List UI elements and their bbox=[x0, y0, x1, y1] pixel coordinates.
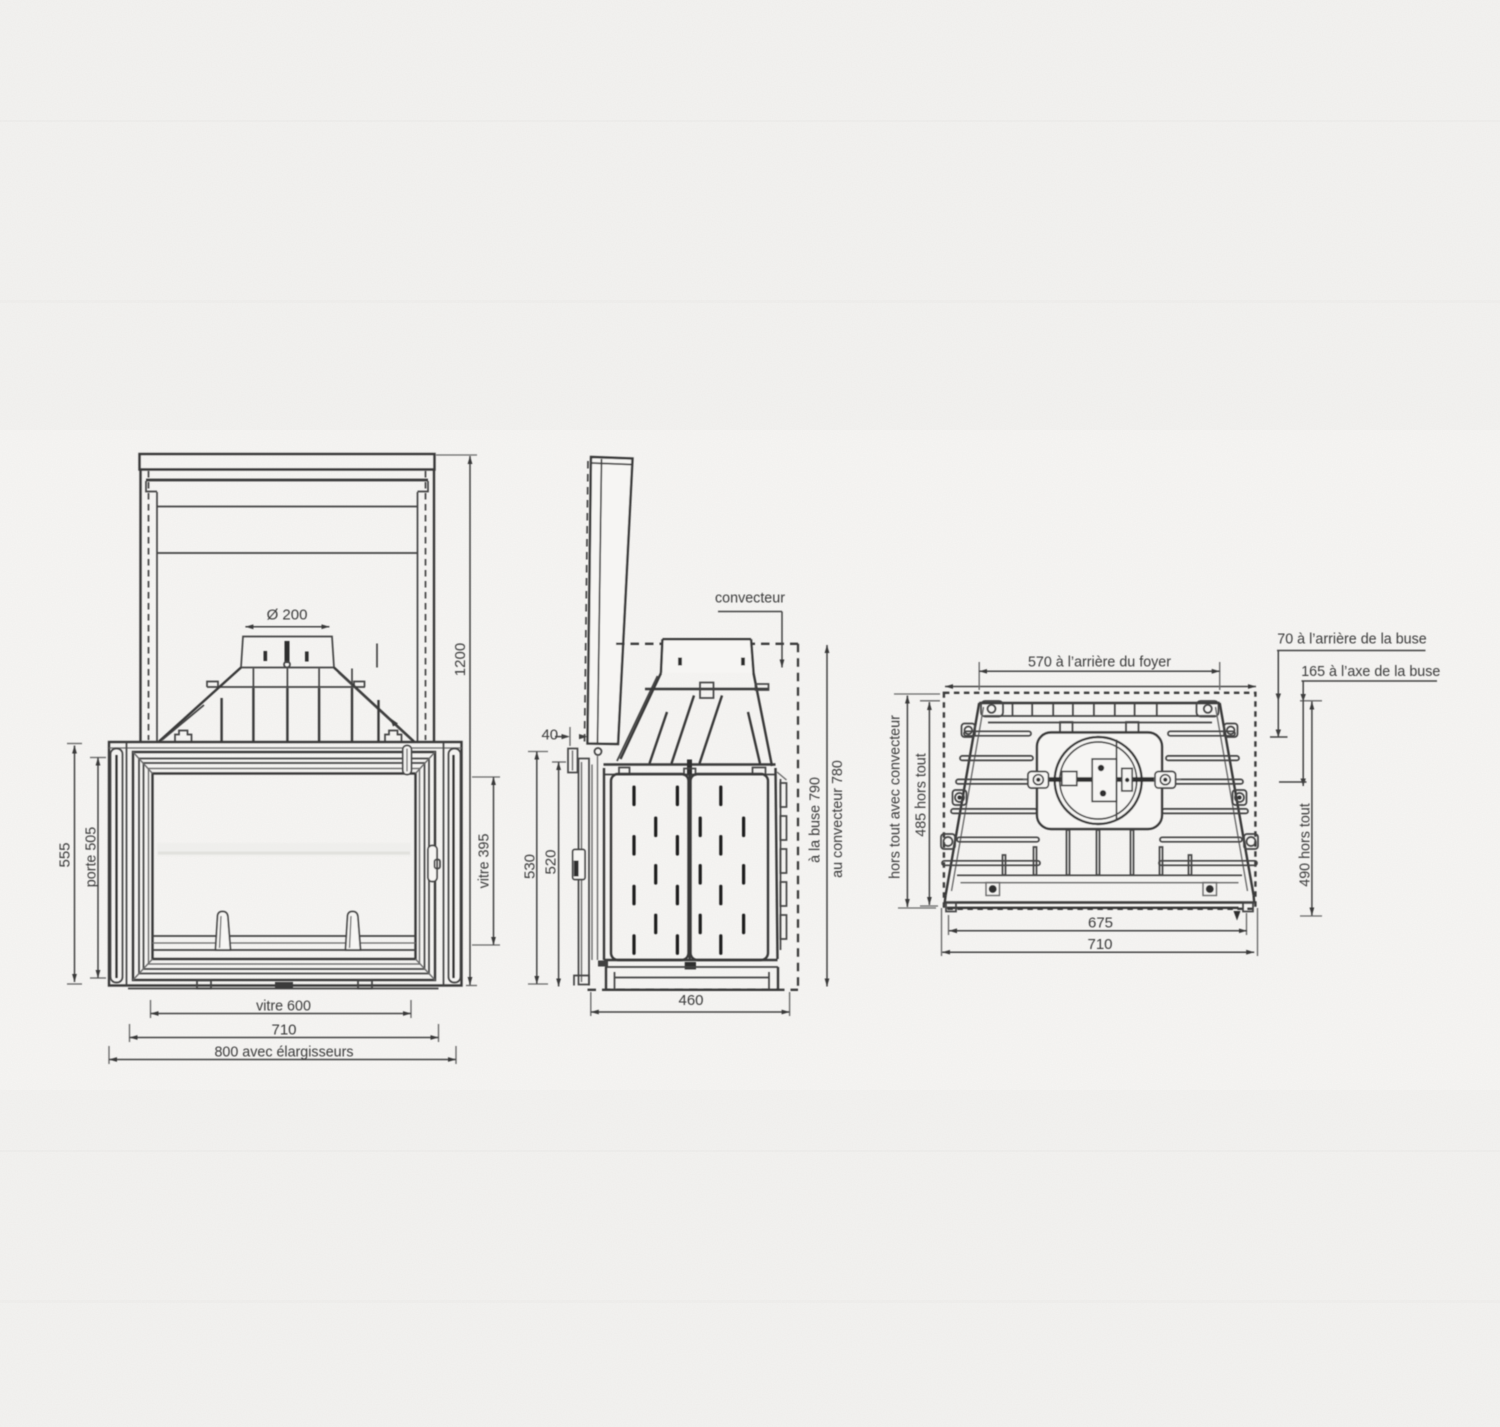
svg-text:porte 505: porte 505 bbox=[84, 827, 100, 887]
svg-text:710: 710 bbox=[271, 1022, 296, 1039]
svg-text:800 avec élargisseurs: 800 avec élargisseurs bbox=[214, 1045, 353, 1061]
svg-text:710: 710 bbox=[1087, 936, 1112, 953]
svg-text:Ø 200: Ø 200 bbox=[267, 607, 308, 624]
svg-text:555: 555 bbox=[57, 842, 74, 867]
svg-text:485 hors tout: 485 hors tout bbox=[914, 753, 930, 836]
svg-text:490 hors tout: 490 hors tout bbox=[1298, 803, 1314, 886]
svg-text:vitre 395: vitre 395 bbox=[477, 834, 493, 889]
svg-text:570 à l’arrière du foyer: 570 à l’arrière du foyer bbox=[1028, 655, 1171, 671]
svg-text:675: 675 bbox=[1088, 915, 1113, 932]
svg-text:convecteur: convecteur bbox=[715, 591, 785, 607]
svg-text:vitre 600: vitre 600 bbox=[256, 999, 311, 1015]
svg-text:165 à l’axe de la buse: 165 à l’axe de la buse bbox=[1301, 664, 1440, 680]
svg-text:hors tout avec convecteur: hors tout avec convecteur bbox=[888, 715, 904, 879]
svg-text:40: 40 bbox=[541, 727, 558, 744]
svg-text:520: 520 bbox=[543, 849, 560, 874]
svg-text:460: 460 bbox=[678, 992, 703, 1009]
svg-text:70 à l’arrière de la buse: 70 à l’arrière de la buse bbox=[1277, 632, 1426, 648]
svg-text:530: 530 bbox=[522, 854, 539, 879]
svg-text:au convecteur 780: au convecteur 780 bbox=[830, 760, 846, 878]
svg-text:1200: 1200 bbox=[452, 643, 469, 676]
svg-text:à la buse 790: à la buse 790 bbox=[808, 777, 824, 863]
